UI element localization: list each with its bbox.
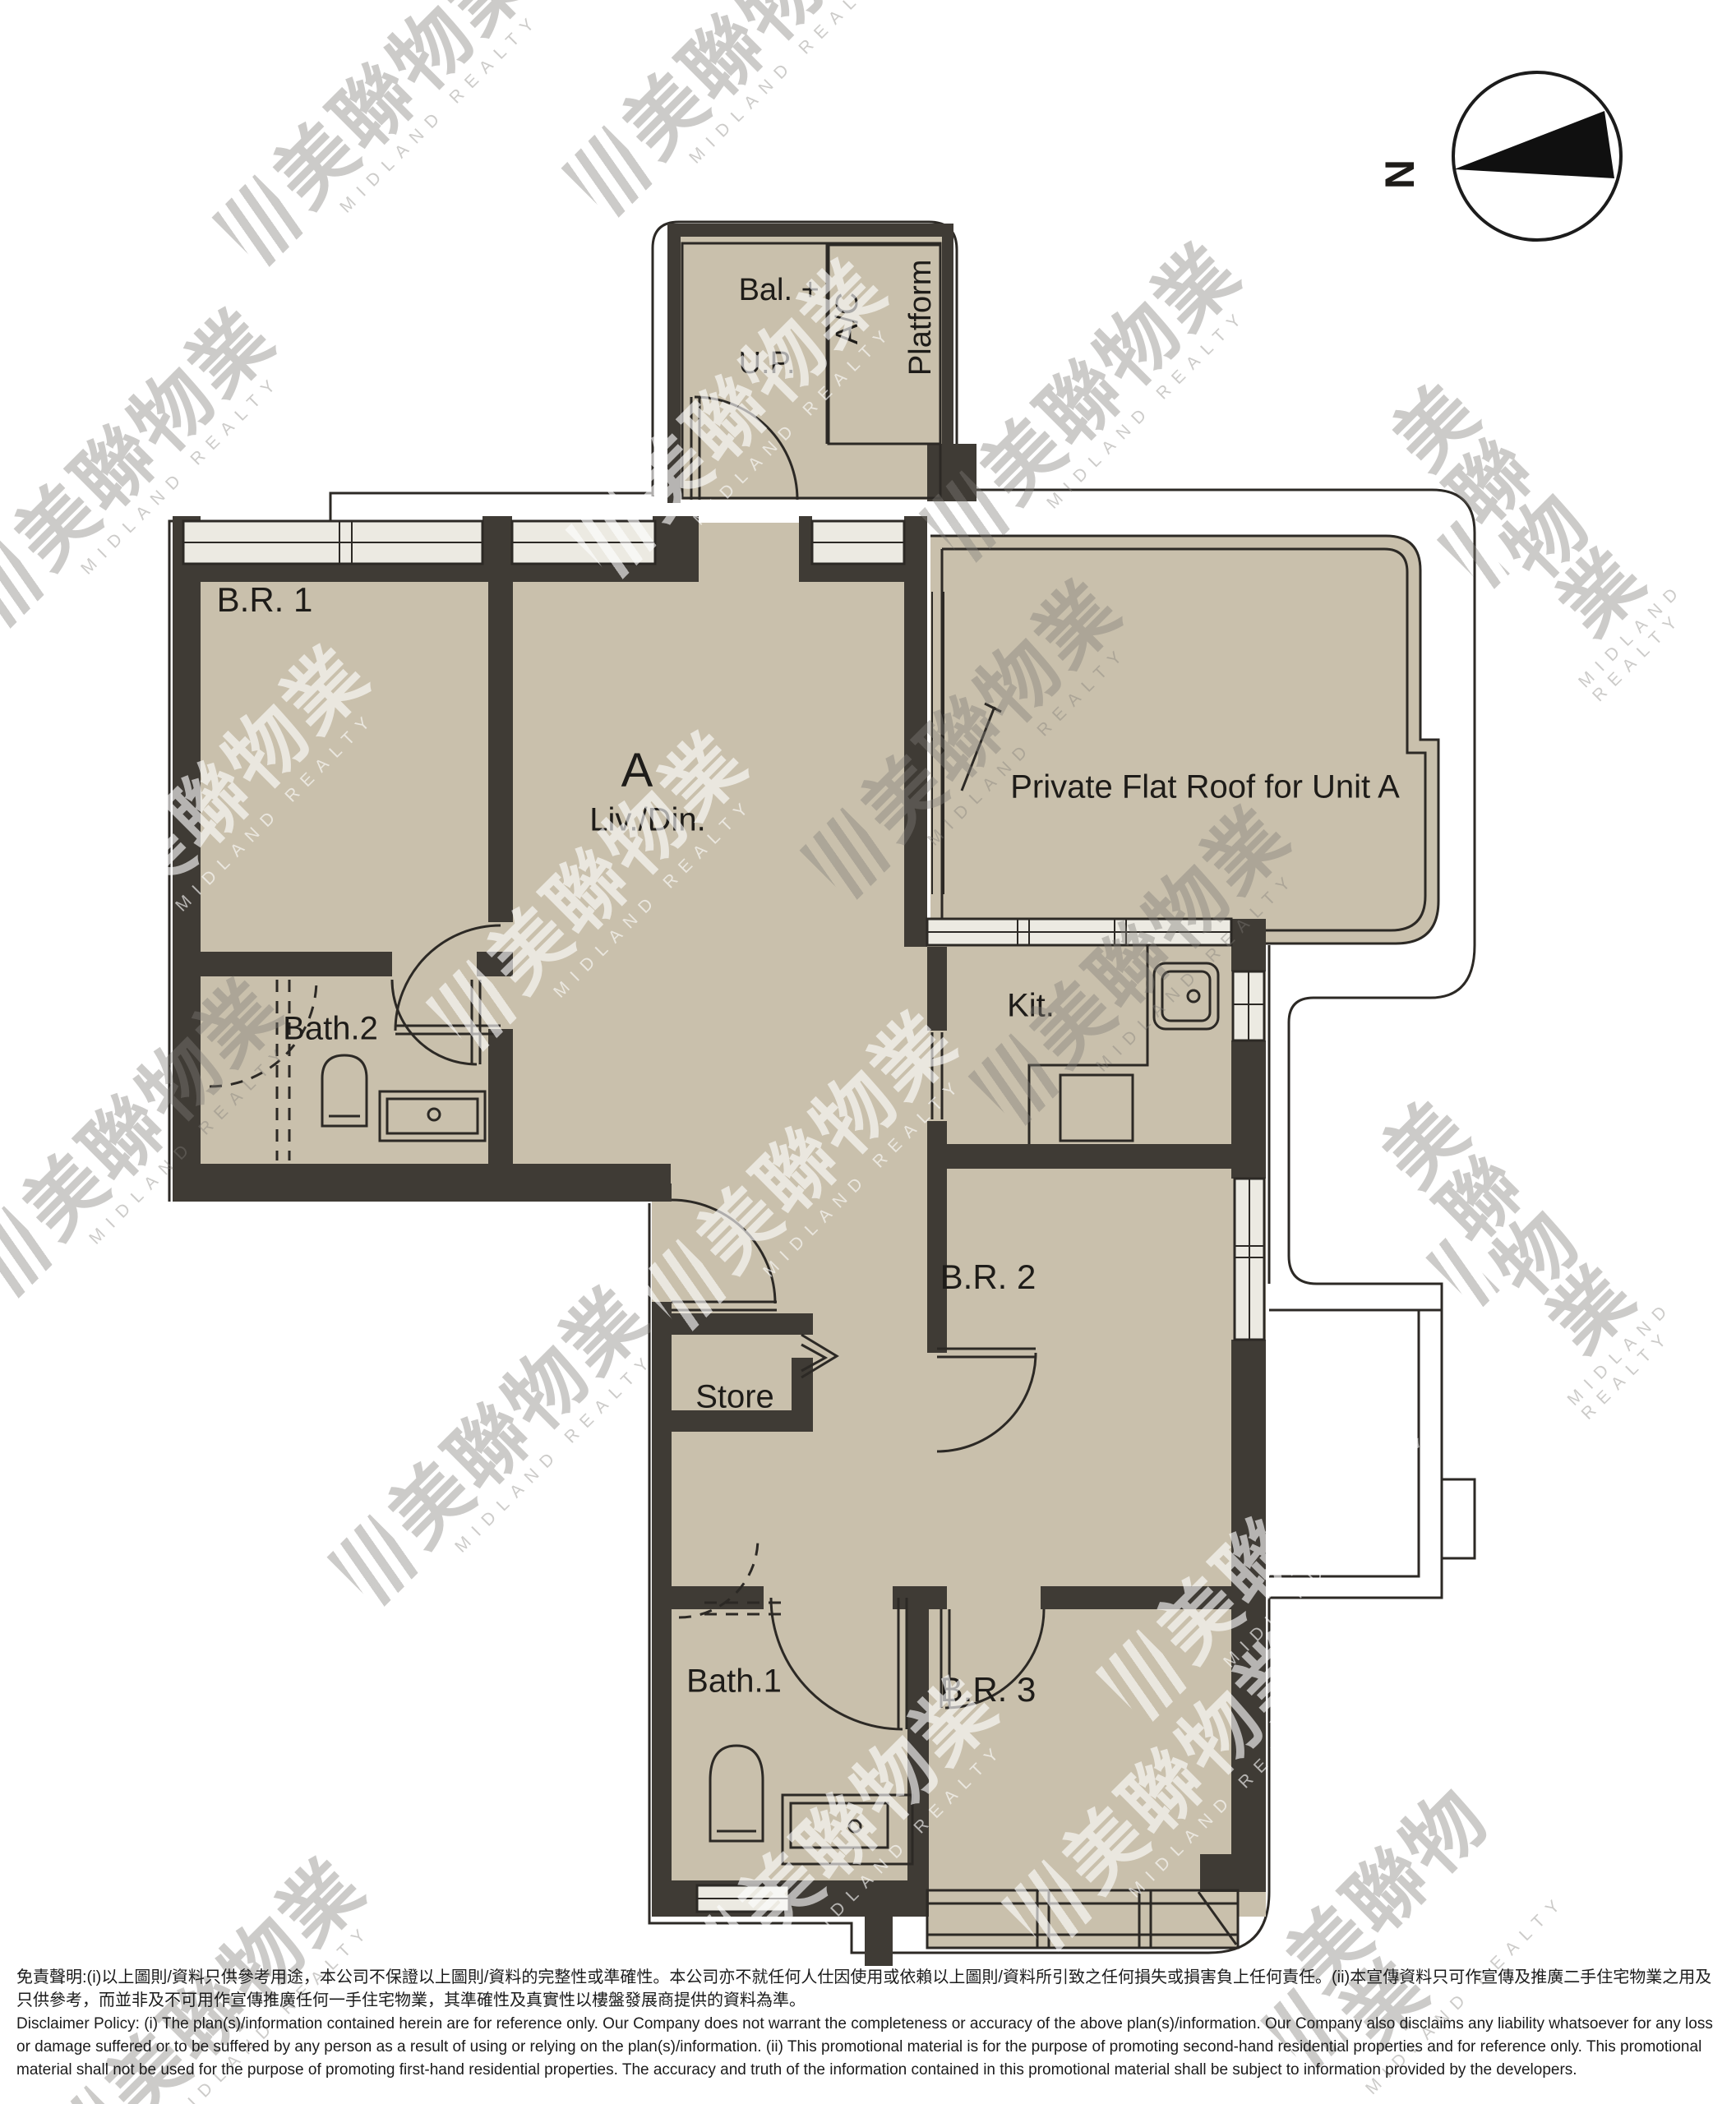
room-label-store: Store — [695, 1377, 774, 1416]
compass-north-label: N — [1375, 159, 1424, 189]
room-label-bath1: Bath.1 — [686, 1662, 782, 1700]
room-label-kitchen: Kit. — [1007, 986, 1055, 1025]
disclaimer-chinese: 免責聲明:(i)以上圖則/資料只供參考用途，本公司不保證以上圖則/資料的完整性或… — [16, 1966, 1723, 2013]
unit-label: A — [621, 743, 653, 799]
floor-plan-page: B.R. 1 A Liv./Din. Private Flat Roof for… — [0, 0, 1736, 2104]
room-label-br3: B.R. 3 — [940, 1669, 1037, 1710]
room-label-flat-roof: Private Flat Roof for Unit A — [1010, 768, 1400, 806]
room-label-br2: B.R. 2 — [940, 1257, 1037, 1298]
room-label-br1: B.R. 1 — [217, 579, 313, 621]
disclaimer-block: 免責聲明:(i)以上圖則/資料只供參考用途，本公司不保證以上圖則/資料的完整性或… — [16, 1966, 1723, 2082]
room-label-ac-platform: A/C Platform — [792, 260, 976, 428]
disclaimer-english: Disclaimer Policy: (i) The plan(s)/infor… — [16, 2013, 1723, 2082]
room-label-living: Liv./Din. — [589, 801, 706, 839]
room-labels: B.R. 1 A Liv./Din. Private Flat Roof for… — [0, 0, 1736, 2104]
room-label-bath2: Bath.2 — [283, 1009, 378, 1048]
